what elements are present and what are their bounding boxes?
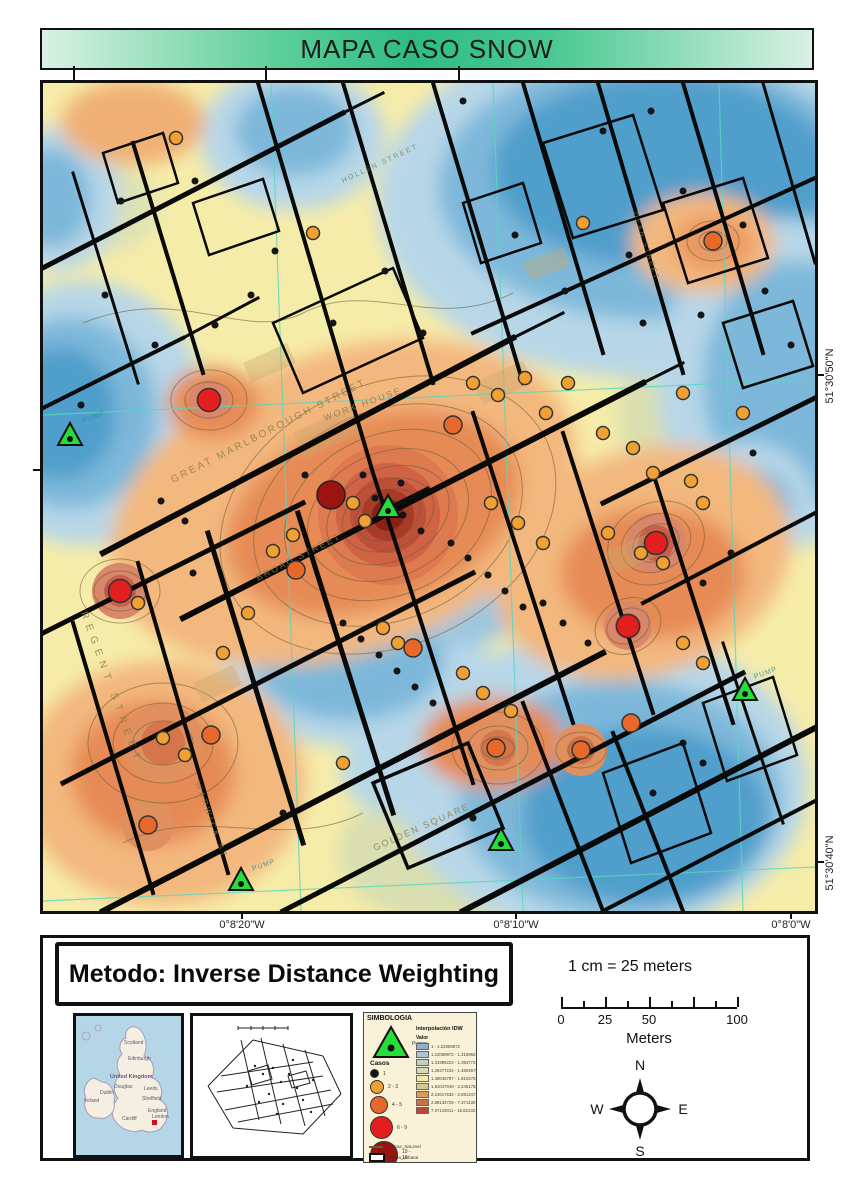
case-marker — [377, 622, 390, 635]
cases-legend-item: 6 - 9 — [370, 1116, 416, 1139]
scale-bar-tick — [715, 1001, 717, 1007]
case-marker — [540, 407, 553, 420]
case-marker — [242, 607, 255, 620]
uk-place-label: Edinburgh — [128, 1056, 151, 1062]
pump-marker-dot — [498, 841, 504, 847]
case-marker — [330, 320, 337, 327]
case-marker — [648, 108, 655, 115]
uk-place-label: Ireland — [84, 1098, 99, 1104]
case-marker — [512, 232, 519, 239]
idw-class-swatch — [416, 1107, 429, 1115]
case-marker — [337, 757, 350, 770]
case-marker — [418, 528, 425, 535]
snow-original-map-inset — [190, 1013, 353, 1159]
case-marker — [685, 475, 698, 488]
idw-class-label: 2.89134729 - 7.37143011 — [431, 1100, 477, 1105]
case-marker — [762, 288, 769, 295]
case-marker — [680, 740, 687, 747]
case-marker — [412, 684, 419, 691]
case-marker — [457, 667, 470, 680]
idw-class-label: 1.31999223 - 1.39477234 — [431, 1060, 477, 1065]
case-marker — [505, 705, 518, 718]
case-marker — [302, 472, 309, 479]
uk-place-label: Leeds — [144, 1086, 158, 1092]
grid-tick-top — [73, 66, 75, 80]
case-marker — [287, 561, 305, 579]
case-marker — [740, 222, 747, 229]
urban-legend-label: Trama_Urbana — [388, 1155, 418, 1160]
case-class-icon — [370, 1096, 388, 1114]
lon-label: 0°8'20"W — [202, 919, 282, 931]
case-marker — [677, 387, 690, 400]
lat-label: 51°30'50"N — [824, 331, 838, 421]
idw-class-swatch — [416, 1067, 429, 1075]
case-marker — [647, 467, 660, 480]
compass-w: W — [590, 1101, 604, 1117]
pump-legend-icon — [372, 1025, 410, 1059]
urban-legend-row: Trama_Urbana — [369, 1153, 418, 1162]
case-marker — [190, 570, 197, 577]
case-marker — [704, 232, 722, 250]
case-marker — [697, 657, 710, 670]
contour-legend-label: Contour_SnLevel — [386, 1144, 421, 1149]
scale-tick-label: 100 — [726, 1012, 748, 1027]
case-marker — [626, 252, 633, 259]
idw-legend-item: 2.89134729 - 7.37143011 — [416, 1099, 476, 1106]
case-marker — [448, 540, 455, 547]
idw-legend-item: 1.81047049 - 2.24617532 — [416, 1083, 476, 1090]
case-marker — [600, 128, 607, 135]
scale-tick-label: 25 — [598, 1012, 612, 1027]
case-marker — [519, 372, 532, 385]
case-marker — [287, 529, 300, 542]
uk-place-label: Cardiff — [122, 1116, 137, 1122]
idw-legend-list: 1 - 1.220599721.22059972 - 1.319992231.3… — [416, 1043, 476, 1115]
case-marker — [460, 98, 467, 105]
case-marker — [430, 700, 437, 707]
idw-class-swatch — [416, 1083, 429, 1091]
case-marker — [358, 636, 365, 643]
scale-bar-tick — [627, 1001, 629, 1007]
uk-place-label: Douglas — [114, 1084, 132, 1090]
case-marker — [627, 442, 640, 455]
case-marker — [157, 732, 170, 745]
idw-class-label: 1.48046787 - 1.81047049 — [431, 1076, 477, 1081]
case-marker — [617, 615, 640, 638]
case-marker — [485, 497, 498, 510]
compass-n: N — [635, 1057, 645, 1073]
case-marker — [680, 188, 687, 195]
case-marker — [317, 481, 345, 509]
idw-legend-item: 1.31999223 - 1.39477234 — [416, 1059, 476, 1066]
case-marker — [697, 497, 710, 510]
case-marker — [585, 640, 592, 647]
idw-value-label: Valor — [416, 1035, 428, 1041]
case-marker — [182, 518, 189, 525]
poster-page: MAPA CASO SNOW — [0, 0, 848, 1200]
case-marker — [404, 639, 422, 657]
case-marker — [272, 248, 279, 255]
case-marker — [444, 416, 462, 434]
case-class-label: 1 — [383, 1071, 386, 1077]
pump-marker-dot — [67, 436, 73, 442]
scale-bar-labels: 0 25 50 100 — [561, 1012, 737, 1026]
case-marker — [307, 227, 320, 240]
lat-label: 51°30'40"N — [824, 818, 838, 908]
case-marker — [728, 550, 735, 557]
case-marker — [577, 217, 590, 230]
lat-tick — [33, 469, 42, 471]
case-marker — [477, 687, 490, 700]
idw-legend-item: 7.37143011 - 16.8213215 — [416, 1107, 476, 1114]
idw-class-label: 1.39477234 - 1.48046787 — [431, 1068, 477, 1073]
case-marker — [602, 527, 615, 540]
pump-marker-dot — [742, 691, 748, 697]
cases-legend-title: Casos — [370, 1060, 390, 1067]
idw-legend-item: 1 - 1.22059972 — [416, 1043, 476, 1050]
case-marker — [359, 515, 372, 528]
case-marker — [420, 330, 427, 337]
legend-title: SIMBOLOGIA — [367, 1015, 412, 1022]
map-title-bar: MAPA CASO SNOW — [40, 28, 814, 70]
lon-tick — [515, 911, 517, 919]
case-marker — [152, 342, 159, 349]
idw-legend-item: 1.22059972 - 1.31999223 — [416, 1051, 476, 1058]
case-class-label: 4 - 5 — [392, 1102, 402, 1108]
scale-bar-tick — [561, 997, 563, 1007]
case-marker — [360, 472, 367, 479]
case-marker — [179, 749, 192, 762]
lon-label: 0°8'10"W — [476, 919, 556, 931]
case-marker — [202, 726, 220, 744]
scale-tick-label: 0 — [557, 1012, 564, 1027]
idw-class-label: 1 - 1.22059972 — [431, 1044, 460, 1049]
compass-e: E — [678, 1101, 687, 1117]
case-marker — [487, 739, 505, 757]
case-marker — [340, 620, 347, 627]
case-class-label: 2 - 3 — [388, 1084, 398, 1090]
uk-place-label: Sheffield — [142, 1096, 161, 1102]
scale-ratio-text: 1 cm = 25 meters — [520, 958, 740, 976]
scale-bar — [561, 995, 737, 1009]
case-marker — [347, 497, 360, 510]
lat-tick — [815, 374, 824, 376]
case-marker — [217, 647, 230, 660]
case-marker — [512, 517, 525, 530]
cases-legend-item: 2 - 3 — [370, 1080, 416, 1094]
case-marker — [788, 342, 795, 349]
cases-legend-item: 1 — [370, 1069, 416, 1078]
uk-country-label: United Kingdom — [110, 1074, 152, 1080]
case-marker — [700, 580, 707, 587]
snow-map-canvas: GREAT MARLBOROUGH STREET BROAD STREET WO… — [43, 83, 815, 911]
case-marker — [485, 572, 492, 579]
scale-bar-tick — [737, 997, 739, 1007]
compass-s: S — [635, 1143, 644, 1159]
case-marker — [520, 604, 527, 611]
case-marker — [635, 547, 648, 560]
case-marker — [562, 288, 569, 295]
contour-line-icon — [369, 1146, 383, 1148]
case-marker — [248, 292, 255, 299]
pump-marker-dot — [385, 508, 391, 514]
idw-class-swatch — [416, 1075, 429, 1083]
idw-class-label: 7.37143011 - 16.8213215 — [431, 1108, 477, 1113]
lon-tick — [241, 911, 243, 919]
case-marker — [394, 668, 401, 675]
case-marker — [132, 597, 145, 610]
pump-marker-dot — [238, 881, 244, 887]
idw-class-label: 2.24617532 - 2.89134729 — [431, 1092, 477, 1097]
case-marker — [562, 377, 575, 390]
case-marker — [540, 600, 547, 607]
method-label: Metodo: Inverse Distance Weighting — [69, 960, 499, 989]
idw-legend-item: 1.39477234 - 1.48046787 — [416, 1067, 476, 1074]
lat-tick — [815, 861, 824, 863]
case-marker — [392, 637, 405, 650]
page-title: MAPA CASO SNOW — [300, 34, 553, 65]
cases-legend-item: 4 - 5 — [370, 1096, 416, 1114]
idw-class-swatch — [416, 1099, 429, 1107]
case-marker — [139, 816, 157, 834]
case-marker — [622, 714, 640, 732]
case-marker — [572, 741, 590, 759]
case-marker — [640, 320, 647, 327]
case-marker — [192, 178, 199, 185]
case-marker — [750, 450, 757, 457]
idw-legend-title: Interpolación IDW — [416, 1026, 474, 1032]
idw-class-swatch — [416, 1091, 429, 1099]
case-marker — [109, 580, 132, 603]
case-class-icon — [370, 1080, 384, 1094]
method-box: Metodo: Inverse Distance Weighting — [55, 942, 513, 1006]
idw-legend-item: 2.24617532 - 2.89134729 — [416, 1091, 476, 1098]
lon-label: 0°8'0"W — [751, 919, 831, 931]
compass-rose: N S W E — [585, 1052, 695, 1162]
main-map: GREAT MARLBOROUGH STREET BROAD STREET WO… — [40, 80, 818, 914]
snow-original-map — [193, 1016, 350, 1156]
case-marker — [372, 495, 379, 502]
scale-bar-tick — [693, 997, 695, 1007]
case-marker — [118, 198, 125, 205]
scale-tick-label: 50 — [642, 1012, 656, 1027]
case-marker — [537, 537, 550, 550]
case-marker — [280, 810, 287, 817]
grid-tick-top — [265, 66, 267, 80]
scale-bar-tick — [605, 997, 607, 1007]
case-class-label: 6 - 9 — [397, 1125, 407, 1131]
scale-bar-tick — [649, 997, 651, 1007]
legend-simbologia: SIMBOLOGIA Pumps Casos 12 - 34 - 56 - 91… — [363, 1012, 477, 1163]
case-marker — [170, 132, 183, 145]
scale-bar-tick — [583, 1001, 585, 1007]
grid-tick-top — [458, 66, 460, 80]
case-class-icon — [370, 1069, 379, 1078]
case-marker — [502, 588, 509, 595]
case-marker — [465, 555, 472, 562]
case-marker — [560, 620, 567, 627]
london-marker — [152, 1120, 157, 1125]
lon-tick — [790, 911, 792, 919]
uk-locator-inset: Scotland Edinburgh United Kingdom Irelan… — [73, 1013, 184, 1158]
uk-place-label: London — [152, 1114, 169, 1120]
case-marker — [597, 427, 610, 440]
idw-class-swatch — [416, 1059, 429, 1067]
case-marker — [492, 389, 505, 402]
case-marker — [267, 545, 280, 558]
uk-place-label: Scotland — [124, 1040, 143, 1046]
idw-legend-item: 1.48046787 - 1.81047049 — [416, 1075, 476, 1082]
case-marker — [158, 498, 165, 505]
idw-class-label: 1.22059972 - 1.31999223 — [431, 1052, 477, 1057]
case-marker — [470, 815, 477, 822]
case-marker — [467, 377, 480, 390]
case-marker — [212, 322, 219, 329]
case-marker — [650, 790, 657, 797]
case-marker — [698, 312, 705, 319]
case-marker — [102, 292, 109, 299]
case-marker — [737, 407, 750, 420]
case-marker — [398, 480, 405, 487]
case-marker — [382, 268, 389, 275]
idw-class-swatch — [416, 1051, 429, 1059]
scale-bar-tick — [671, 1001, 673, 1007]
contour-legend-row: Contour_SnLevel — [369, 1144, 421, 1149]
case-marker — [700, 760, 707, 767]
idw-class-swatch — [416, 1043, 429, 1051]
case-class-icon — [370, 1116, 393, 1139]
case-marker — [677, 637, 690, 650]
case-marker — [376, 652, 383, 659]
case-marker — [657, 557, 670, 570]
urban-fabric-icon — [369, 1153, 385, 1162]
idw-class-label: 1.81047049 - 2.24617532 — [431, 1084, 477, 1089]
scale-unit-label: Meters — [561, 1030, 737, 1047]
uk-place-label: Dublin — [100, 1090, 114, 1096]
case-marker — [78, 402, 85, 409]
case-marker — [198, 389, 221, 412]
